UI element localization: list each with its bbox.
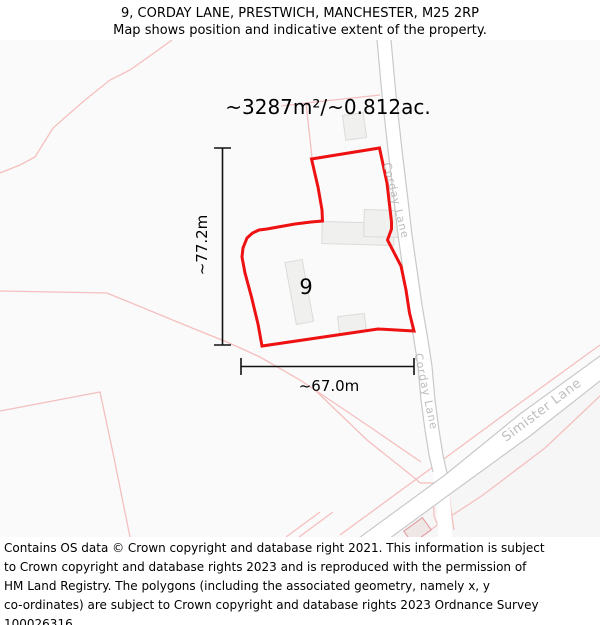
horizontal-measure-label: ~67.0m bbox=[289, 377, 369, 395]
area-label: ~3287m²/~0.812ac. bbox=[168, 95, 488, 119]
map-canvas bbox=[0, 0, 600, 625]
copyright-line: co-ordinates) are subject to Crown copyr… bbox=[4, 596, 596, 615]
copyright-line: HM Land Registry. The polygons (includin… bbox=[4, 577, 596, 596]
vertical-measure-label: ~77.2m bbox=[193, 200, 215, 290]
land-registry-map-page: 9, CORDAY LANE, PRESTWICH, MANCHESTER, M… bbox=[0, 0, 600, 625]
copyright-line: 100026316. bbox=[4, 615, 596, 625]
plot-number-label: 9 bbox=[294, 275, 318, 299]
copyright-line: Contains OS data © Crown copyright and d… bbox=[4, 539, 596, 558]
copyright-notice: Contains OS data © Crown copyright and d… bbox=[4, 539, 596, 625]
copyright-line: to Crown copyright and database rights 2… bbox=[4, 558, 596, 577]
